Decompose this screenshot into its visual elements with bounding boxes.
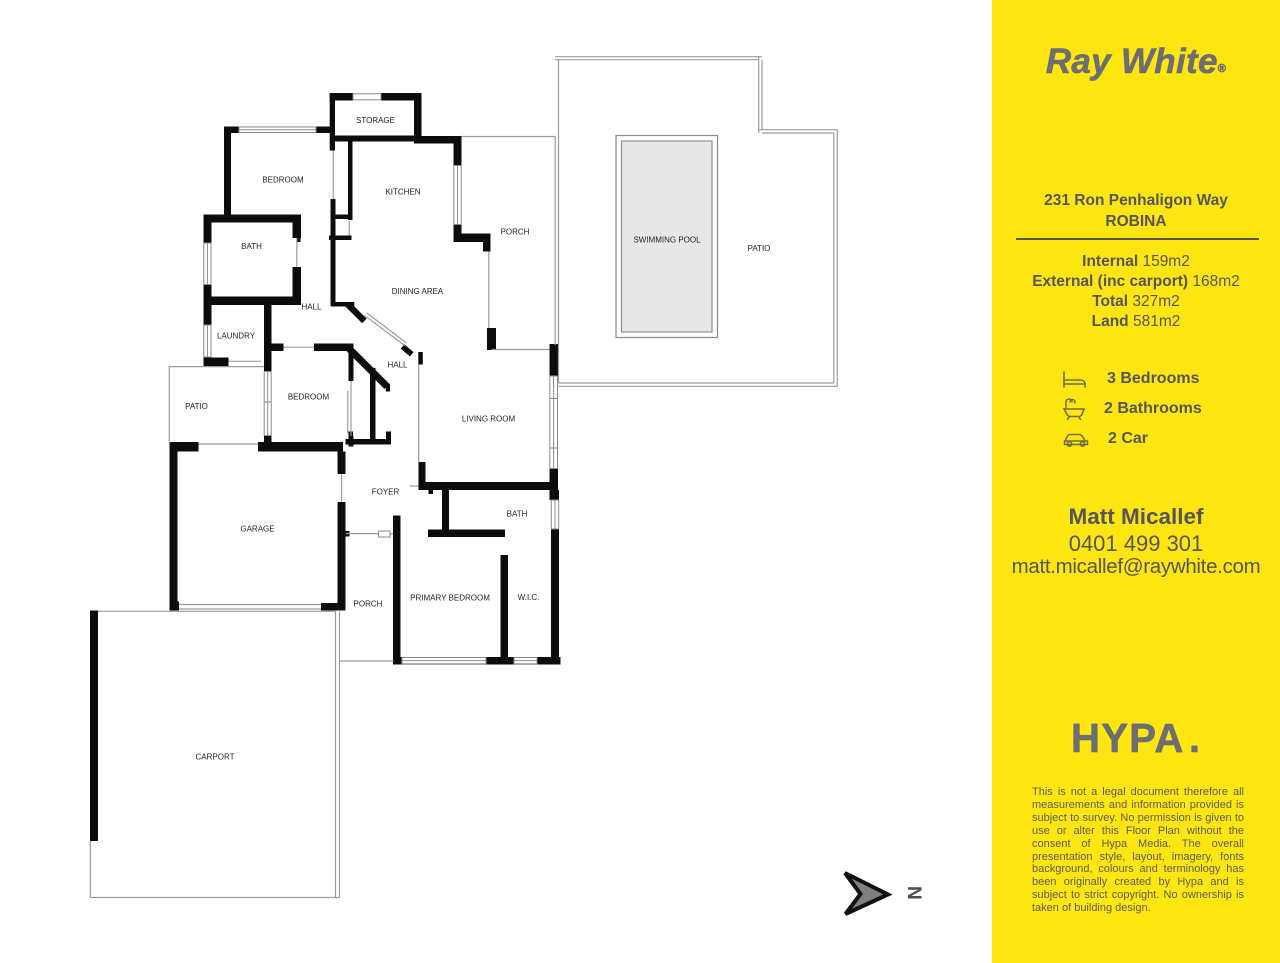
svg-text:LAUNDRY: LAUNDRY (217, 332, 256, 341)
svg-text:PATIO: PATIO (185, 402, 208, 411)
svg-text:HALL: HALL (387, 361, 408, 370)
svg-text:BEDROOM: BEDROOM (288, 393, 330, 402)
svg-text:KITCHEN: KITCHEN (385, 188, 420, 197)
svg-text:FOYER: FOYER (372, 488, 400, 497)
svg-text:N: N (903, 886, 924, 900)
svg-text:LIVING ROOM: LIVING ROOM (462, 415, 516, 424)
svg-text:PRIMARY BEDROOM: PRIMARY BEDROOM (410, 594, 490, 603)
svg-text:DINING AREA: DINING AREA (392, 287, 444, 296)
svg-text:W.I.C.: W.I.C. (518, 593, 540, 602)
svg-text:BATH: BATH (241, 242, 262, 251)
svg-text:BEDROOM: BEDROOM (262, 176, 304, 185)
svg-text:SWIMMING POOL: SWIMMING POOL (633, 236, 701, 245)
svg-text:HALL: HALL (301, 303, 322, 312)
svg-text:PATIO: PATIO (748, 244, 771, 253)
svg-text:GARAGE: GARAGE (240, 525, 274, 534)
svg-text:PORCH: PORCH (501, 228, 530, 237)
svg-text:PORCH: PORCH (354, 600, 383, 609)
svg-text:CARPORT: CARPORT (196, 753, 235, 762)
svg-text:STORAGE: STORAGE (356, 116, 395, 125)
svg-text:BATH: BATH (507, 510, 528, 519)
